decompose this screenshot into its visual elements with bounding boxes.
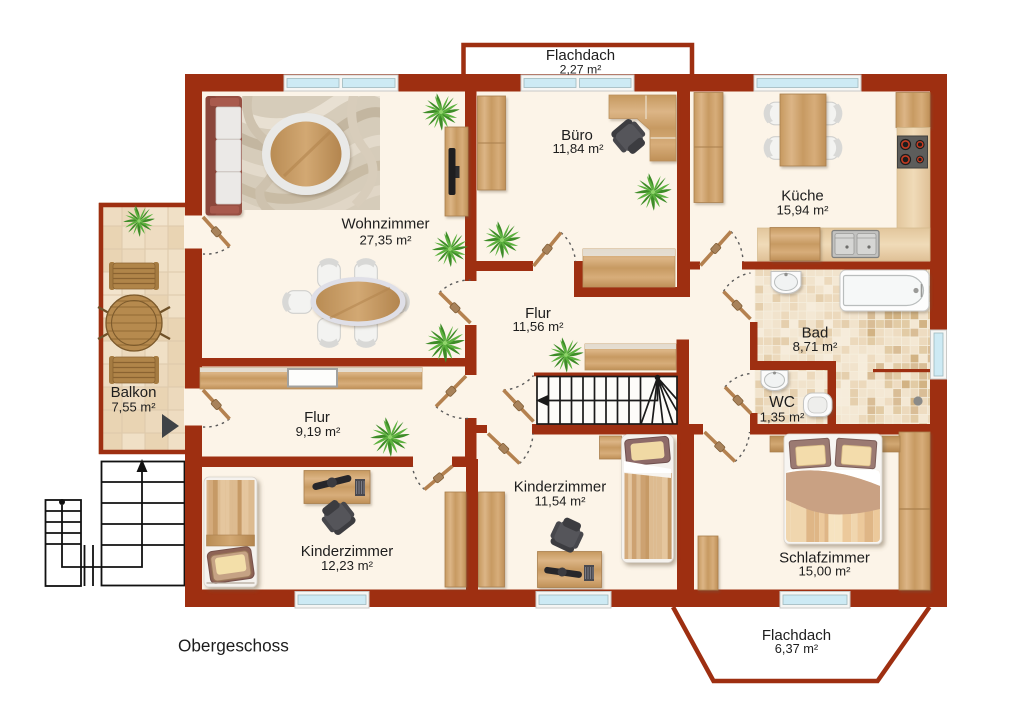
svg-text:27,35 m²: 27,35 m² [359,233,412,248]
svg-text:6,37 m²: 6,37 m² [775,641,819,656]
svg-text:2,27 m²: 2,27 m² [560,63,602,77]
svg-text:11,84 m²: 11,84 m² [552,141,604,156]
svg-text:11,56 m²: 11,56 m² [512,319,564,334]
svg-text:Balkon: Balkon [111,384,157,401]
svg-text:11,54 m²: 11,54 m² [534,494,586,509]
svg-text:Obergeschoss: Obergeschoss [178,636,289,656]
svg-text:9,19 m²: 9,19 m² [296,424,341,439]
svg-text:7,55 m²: 7,55 m² [111,400,156,415]
svg-text:1,35 m²: 1,35 m² [760,410,805,425]
svg-text:8,71 m²: 8,71 m² [793,339,838,354]
svg-text:12,23 m²: 12,23 m² [321,558,374,573]
svg-text:WC: WC [769,394,795,411]
svg-text:Wohnzimmer: Wohnzimmer [341,216,429,233]
svg-text:Flachdach: Flachdach [546,47,615,64]
svg-text:15,00 m²: 15,00 m² [798,564,851,579]
svg-text:15,94 m²: 15,94 m² [776,203,829,218]
